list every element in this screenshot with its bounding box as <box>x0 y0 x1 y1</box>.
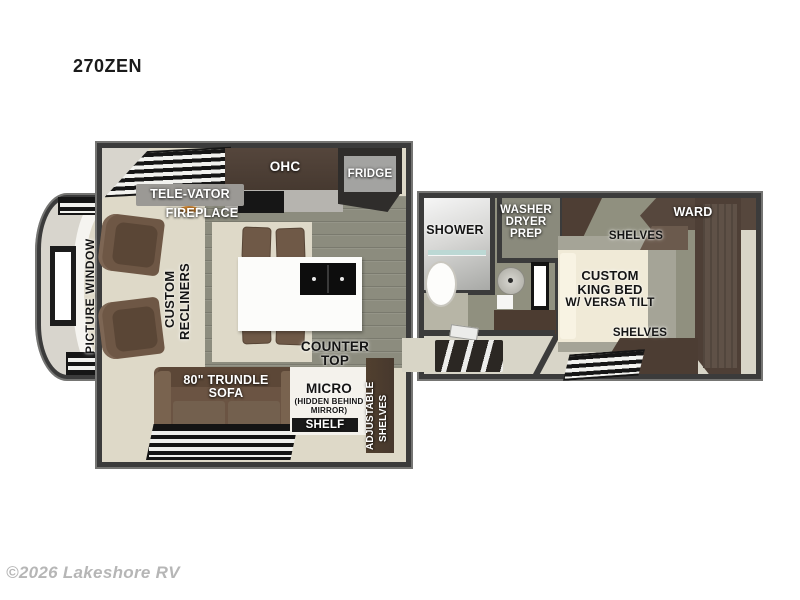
shower-shelf <box>428 250 486 255</box>
shelf-label: SHELF <box>292 419 358 431</box>
sofa-label-line2: SOFA <box>162 387 290 400</box>
shelves-bottom-label: SHELVES <box>608 327 672 339</box>
fridge-label: FRIDGE <box>340 168 400 180</box>
adjustable-shelves-label-line1: ADJUSTABLE <box>366 362 377 450</box>
recliners-label-line2: RECLINERS <box>178 230 192 340</box>
picture-window-pane <box>55 252 71 320</box>
entry-steps <box>435 340 503 372</box>
page-title: 270ZEN <box>73 57 142 76</box>
sofa-cushion <box>173 401 225 427</box>
fireplace-label: FIREPLACE <box>150 207 254 220</box>
shelves-top-label: SHELVES <box>604 230 668 242</box>
micro-line1: MICRO <box>288 382 370 396</box>
floorplan-page: 270ZEN ©2026 Lakeshore RV OHC FRIDGE TEL… <box>0 0 800 600</box>
sink-basin-divider <box>327 265 329 293</box>
sofa-label: 80" TRUNDLE SOFA <box>162 374 290 400</box>
area-rug <box>146 424 298 460</box>
recliner-bottom-cushion <box>112 306 159 353</box>
bath-bottom-wall <box>424 330 555 336</box>
dining-chair <box>241 227 271 261</box>
micro-line3: MIRROR) <box>288 407 370 415</box>
passage-floor <box>402 338 434 372</box>
shower-label: SHOWER <box>424 224 486 237</box>
counter-top-label: COUNTER TOP <box>298 340 372 368</box>
king-bed-label: CUSTOM KING BED W/ VERSA TILT <box>552 269 668 309</box>
wdp-line2: DRYER <box>499 216 553 228</box>
ward-label: WARD <box>668 206 718 219</box>
toilet-drain <box>508 278 513 283</box>
sink-drain-dot <box>312 277 316 281</box>
adjustable-shelves-label-line2: SHELVES <box>379 372 390 442</box>
bath-window-pane <box>534 266 546 306</box>
watermark: ©2026 Lakeshore RV <box>6 564 180 582</box>
wdp-line1: WASHER <box>499 204 553 216</box>
bath-vanity-sink <box>425 261 457 307</box>
washer-dryer-prep-label: WASHER DRYER PREP <box>499 204 553 240</box>
king-bed-line1: CUSTOM <box>552 269 668 283</box>
sofa-cushion <box>228 401 280 427</box>
recliners-label-line1: CUSTOM <box>163 244 177 328</box>
sink-drain-dot <box>340 277 344 281</box>
wardrobe-side-grain <box>703 204 737 368</box>
counter-top-line2: TOP <box>298 354 372 368</box>
wdp-line3: PREP <box>499 228 553 240</box>
recliner-top-cushion <box>112 222 159 269</box>
king-bed-line3: W/ VERSA TILT <box>552 296 668 309</box>
ohc-label: OHC <box>255 160 315 174</box>
picture-window-label: PICTURE WINDOW <box>84 230 97 354</box>
televator-label: TELE-VATOR <box>138 188 242 201</box>
micro-label: MICRO (HIDDEN BEHIND MIRROR) <box>288 382 370 415</box>
toilet-tank <box>497 295 513 309</box>
